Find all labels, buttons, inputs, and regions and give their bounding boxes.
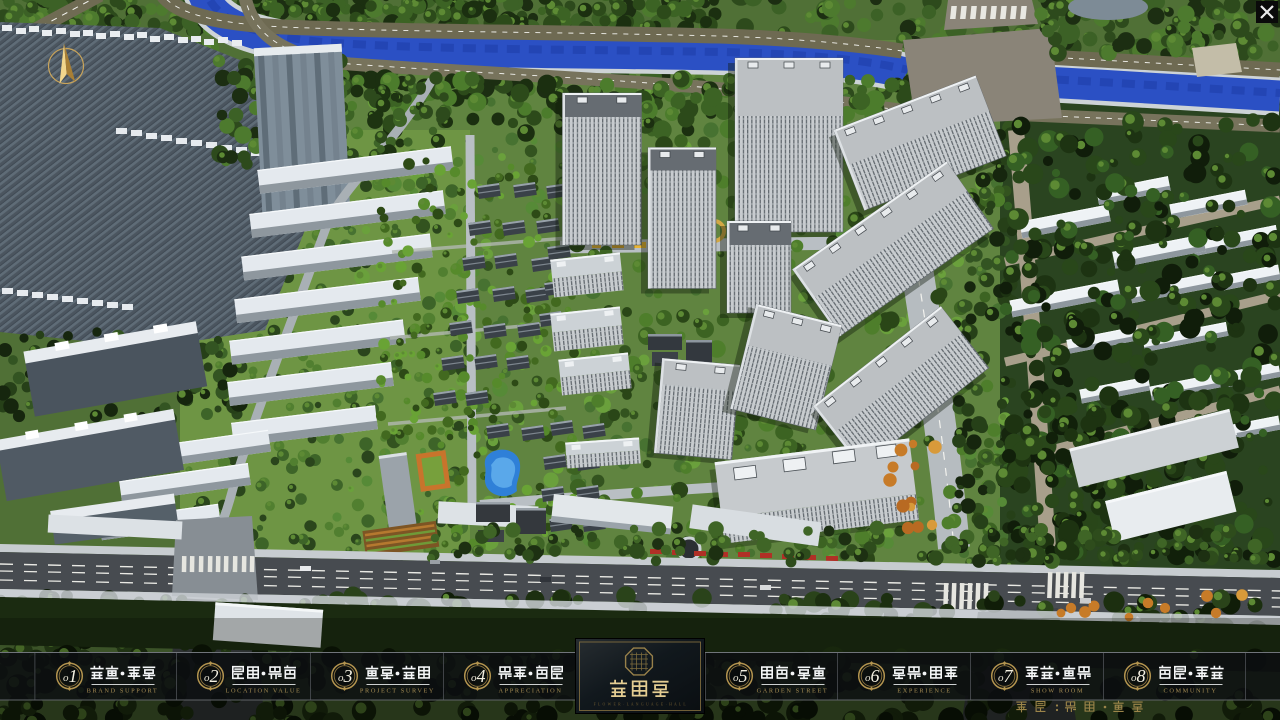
svg-text:1: 1	[69, 666, 78, 686]
